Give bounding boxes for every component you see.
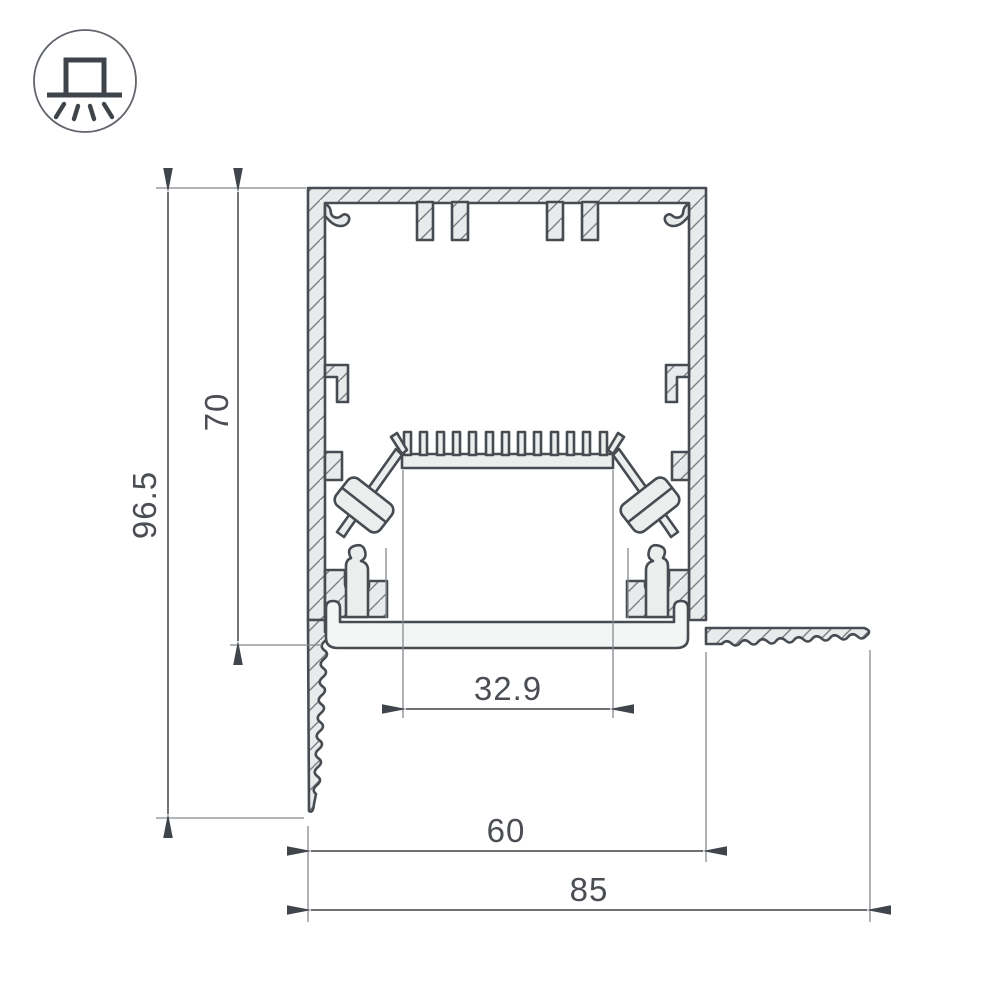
dim-label-total-width: 85 [570, 871, 609, 908]
finger-left [346, 545, 368, 617]
dim-label-height-body: 70 [198, 393, 235, 432]
profile-cross-section-drawing: 96.5 70 32.9 60 85 [0, 0, 1000, 1000]
aluminum-body [308, 188, 869, 812]
dim-label-body-width: 60 [487, 812, 526, 849]
tab-right [672, 452, 689, 480]
dim-label-height-total: 96.5 [126, 471, 163, 539]
mid-hook-right [666, 365, 689, 402]
heatsink-fins [404, 432, 607, 455]
finger-right [646, 545, 668, 617]
icon-circle [34, 30, 136, 132]
flange-left-vertical [308, 620, 328, 812]
mid-hook-left [325, 365, 348, 402]
corner-hook-left [325, 204, 349, 226]
dimension-annotations: 96.5 70 32.9 60 85 [126, 188, 870, 922]
recessed-downlight-icon [34, 30, 136, 132]
corner-hook-right [665, 204, 689, 226]
technical-drawing-page: { "title": "LED profile cross-section dr… [0, 0, 1000, 1000]
flange-right-horizontal [706, 628, 869, 646]
dim-label-window-width: 32.9 [474, 670, 542, 707]
profile-frame [308, 188, 706, 620]
screw-boss-ribs [417, 202, 598, 240]
tab-left [325, 452, 342, 480]
